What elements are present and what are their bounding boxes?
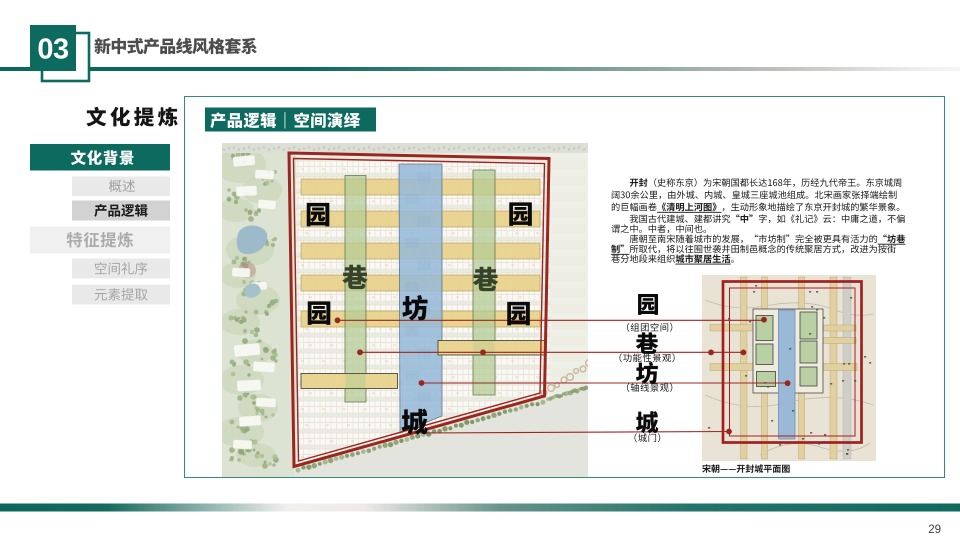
svg-text:03: 03 [37, 34, 69, 66]
svg-text:29: 29 [928, 524, 941, 536]
